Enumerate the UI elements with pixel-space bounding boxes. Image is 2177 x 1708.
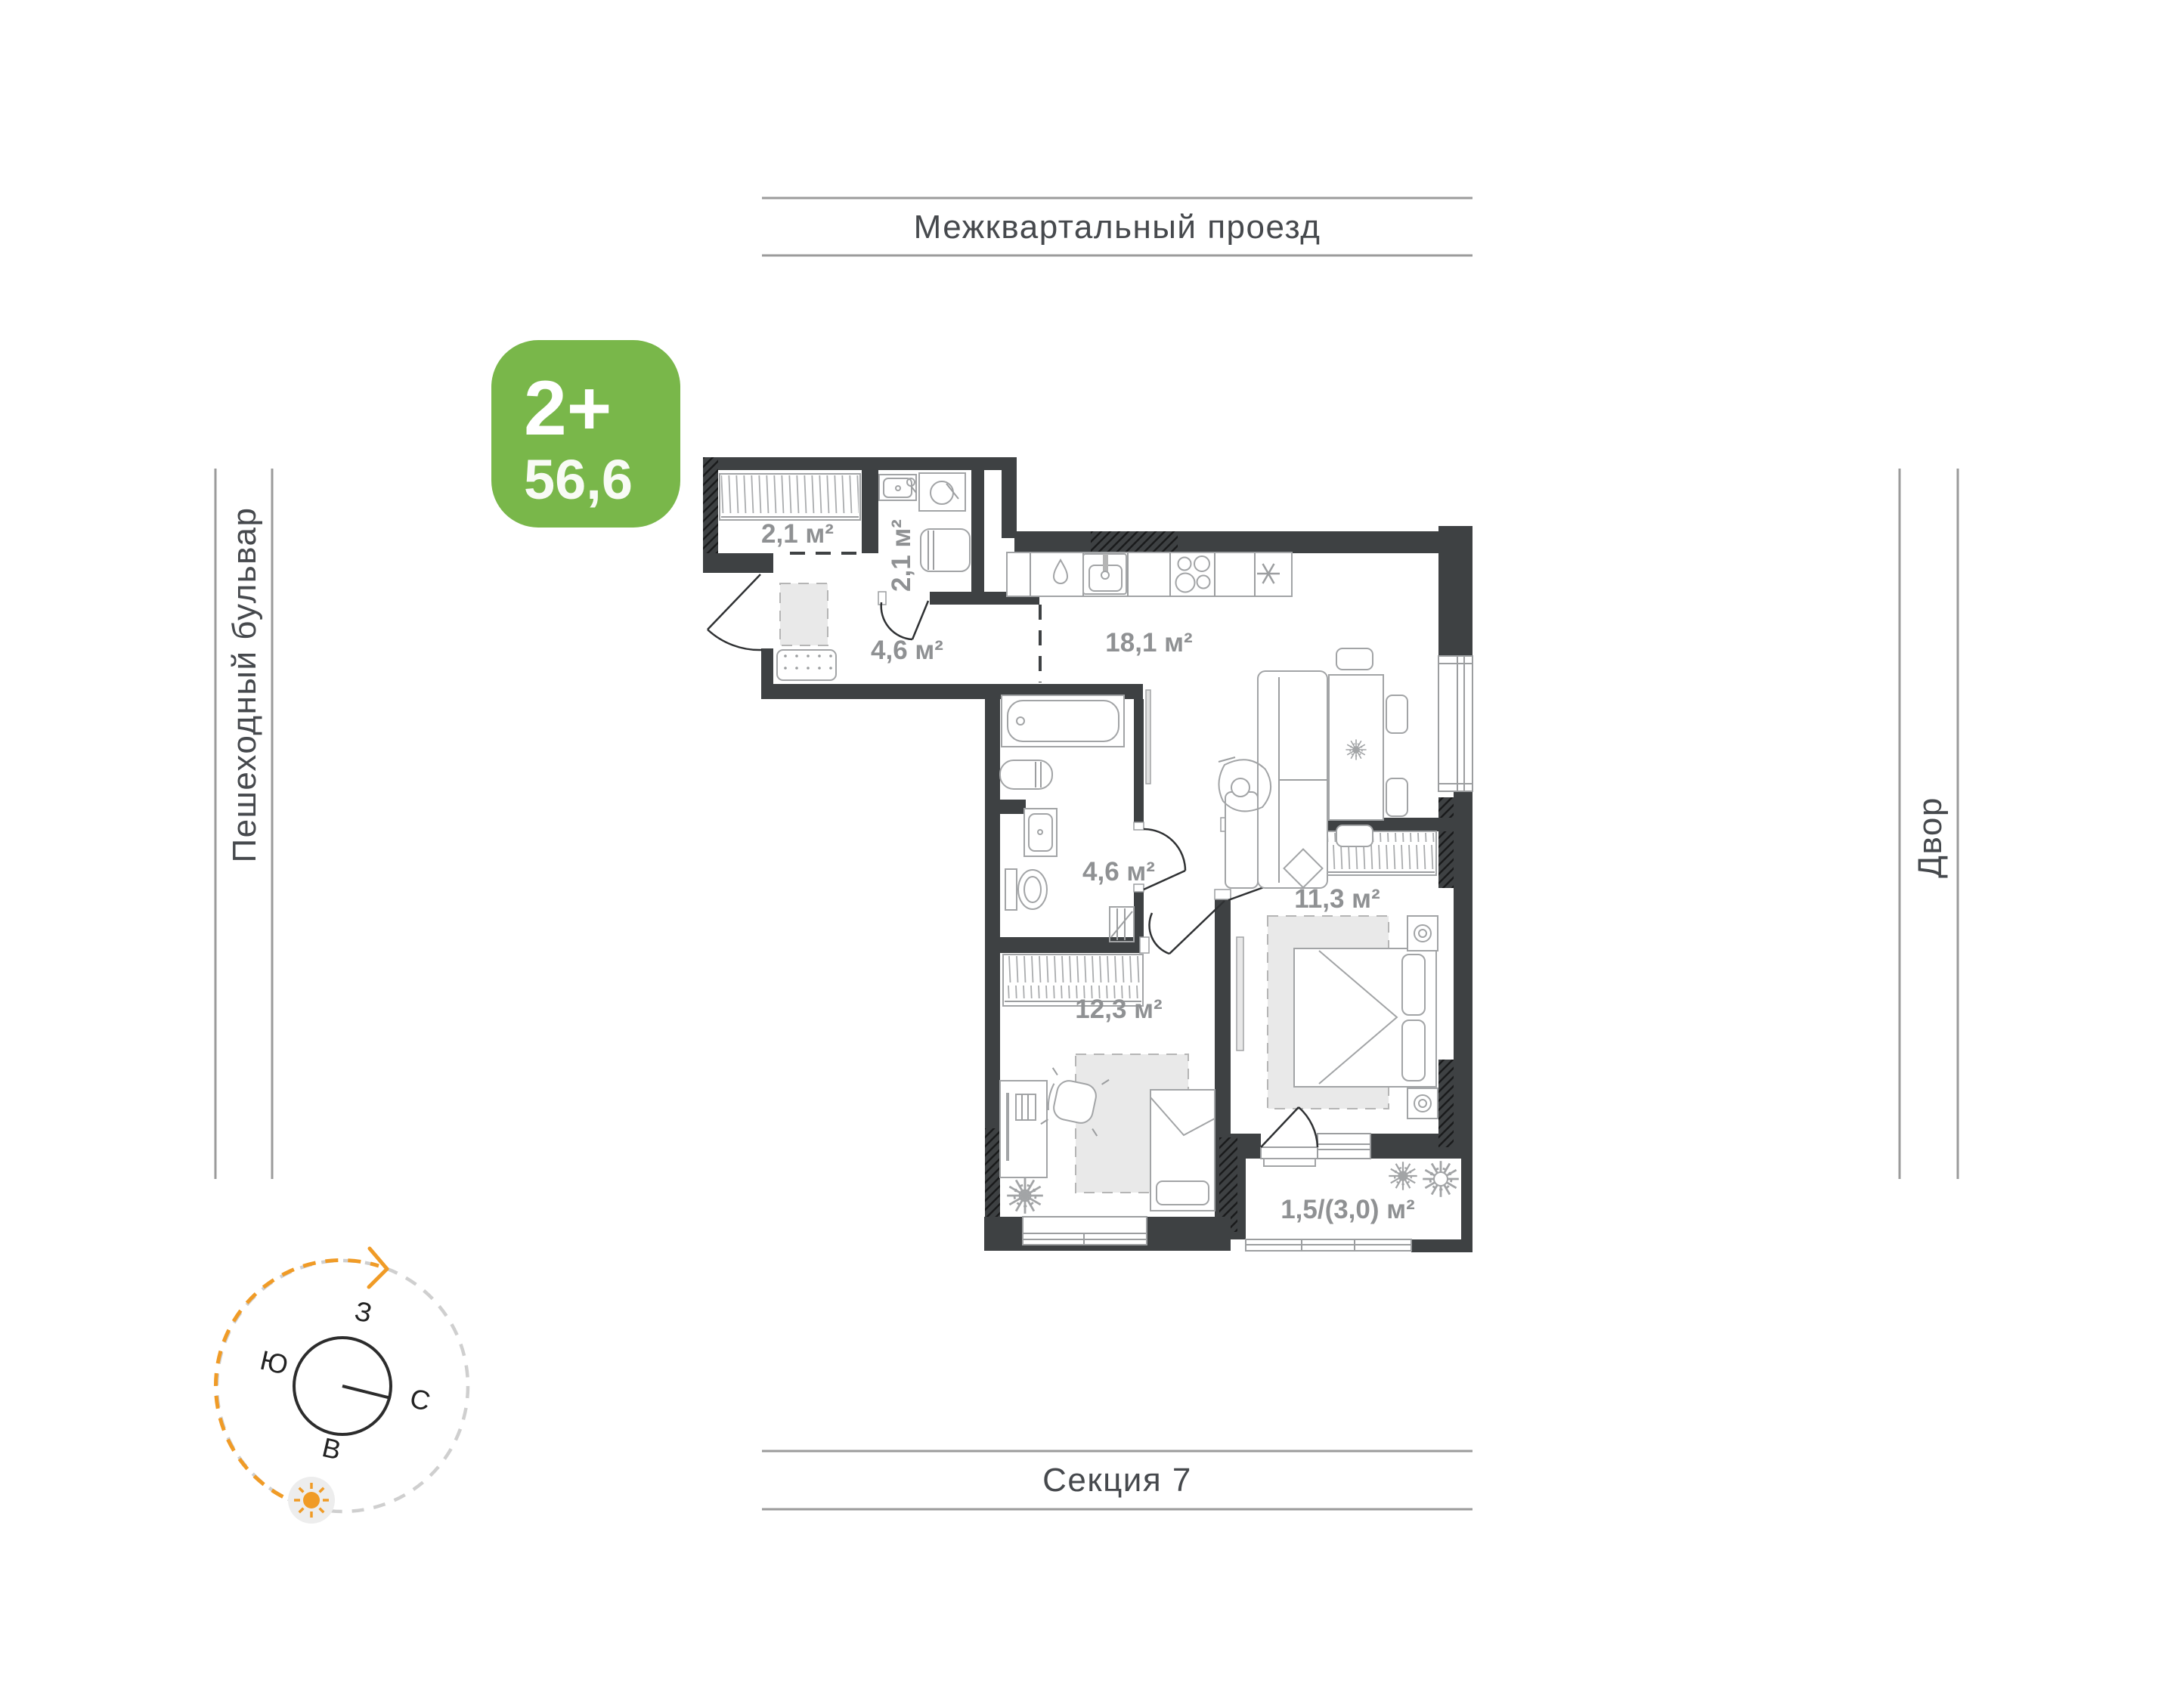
mirror-icon [1237, 937, 1243, 1050]
street-bottom-label: Секция 7 [1042, 1462, 1192, 1499]
floor-plan-page: Межквартальный проезд Секция 7 Пешеходны… [0, 0, 2177, 1708]
compass-north-label: С [407, 1382, 434, 1417]
kitchen-window [1438, 656, 1472, 791]
towel-rail-icon [1110, 907, 1134, 942]
shower-unit-icon [919, 473, 965, 511]
water-heater-icon [1000, 760, 1052, 789]
pillow-icon [1157, 1181, 1209, 1205]
badge-area-value: 56,6 [524, 448, 633, 511]
bathroom-small-area-label: 2,1 м² [887, 519, 916, 592]
compass-east-label: В [320, 1431, 345, 1465]
single-bed-icon [1150, 1090, 1215, 1211]
balcony-door-threshold [1261, 1147, 1318, 1159]
street-left: Пешеходный бульвар [215, 469, 272, 1179]
floor-plan: 2,1 м² 2,1 м² 4,6 м² 18,1 м² 4,6 м² 11,3… [703, 457, 1472, 1252]
desk-icon [1000, 1081, 1047, 1177]
balcony-step [1264, 1159, 1315, 1166]
compass-west-label: З [352, 1295, 375, 1329]
pillow-icon [1402, 955, 1425, 1015]
bedroom-area-label: 11,3 м² [1294, 884, 1380, 914]
plant-pot-icon [1434, 1172, 1448, 1186]
chair-icon [1336, 825, 1373, 846]
hall-rug [780, 583, 828, 645]
bathtub-icon [1002, 695, 1124, 747]
room-door [1150, 901, 1225, 954]
toilet-icon [1005, 869, 1047, 910]
street-right: Двор [1900, 469, 1958, 1179]
balcony-area-label: 1,5/(3,0) м² [1280, 1195, 1415, 1224]
street-bottom: Секция 7 [762, 1451, 1472, 1509]
pillow-icon [1402, 1020, 1425, 1081]
nightstand-icon [1407, 916, 1438, 951]
dining-table-icon [1329, 648, 1407, 846]
street-top: Межквартальный проезд [762, 198, 1472, 255]
kitchen-counter [1007, 552, 1292, 596]
mirror-panel [1146, 690, 1150, 784]
street-top-label: Межквартальный проезд [914, 209, 1321, 246]
balcony-items [1389, 1161, 1459, 1197]
bathroom-area-label: 4,6 м² [1082, 857, 1155, 886]
bathroom-small-door [881, 601, 928, 639]
room-area-label: 12,3 м² [1075, 995, 1162, 1024]
kitchen-area-label: 18,1 м² [1105, 628, 1192, 658]
plant-icon [1389, 1162, 1417, 1190]
faucet-icon [1103, 554, 1108, 572]
chair-icon [1386, 695, 1407, 733]
sun-icon [288, 1477, 335, 1524]
compass-south-label: Ю [257, 1344, 291, 1381]
plant-icon [1007, 1177, 1043, 1214]
badge-type-label: 2+ [524, 365, 612, 451]
nightstand-icon [1407, 1088, 1438, 1119]
arc-arrow-icon [369, 1249, 387, 1287]
hallway-area-label: 4,6 м² [871, 636, 943, 665]
bedroom-window [1318, 1134, 1370, 1159]
hallway-items [777, 650, 836, 680]
chair-icon [1336, 648, 1373, 670]
street-left-label: Пешеходный бульвар [226, 507, 263, 863]
wardrobe-area-label: 2,1 м² [761, 519, 834, 549]
balcony-door [1261, 1107, 1318, 1147]
street-right-label: Двор [1912, 797, 1949, 878]
chair-icon [1386, 778, 1407, 816]
bathroom-fixtures [1000, 695, 1134, 942]
double-bed-icon [1294, 948, 1436, 1087]
compass-icon: З Ю С В [215, 1249, 468, 1524]
apartment-badge: 2+ 56,6 [491, 340, 680, 528]
entry-door [708, 574, 762, 650]
